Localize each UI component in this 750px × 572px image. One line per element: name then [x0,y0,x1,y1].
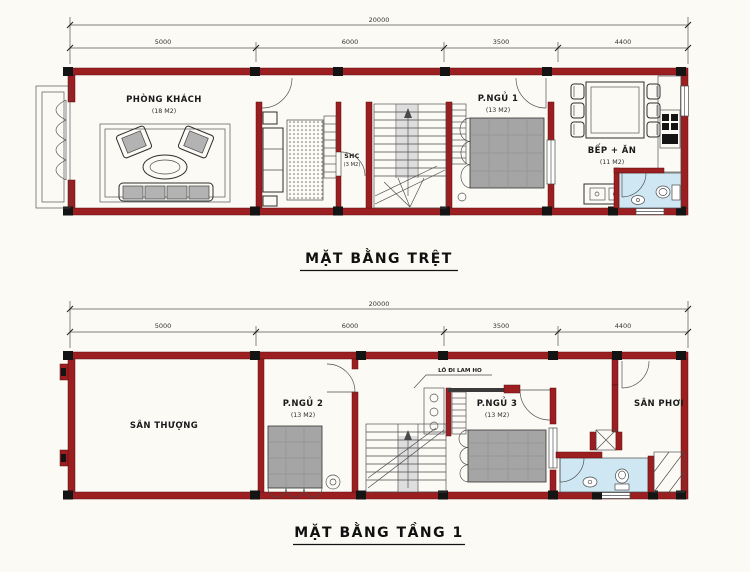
patterned-rug [287,120,323,200]
ground-floor-dimensions: 20000 5000 6000 3500 4400 [67,16,691,64]
room-label-kitchen: BẾP + ĂN [588,143,636,156]
room-label-shc: SHC [344,153,359,160]
bed-1 [460,118,544,188]
washbasin-icon-2 [583,477,597,487]
stair-direction-arrow-2 [404,430,412,440]
ground-floor-plan: 20000 5000 6000 3500 4400 [36,16,691,271]
stove [660,110,680,148]
floorplan-drawing: 20000 5000 6000 3500 4400 [0,0,750,572]
dim-total-2: 20000 [369,300,390,308]
room-label-drying: SÂN PHƠI [634,397,684,409]
dining-chairs [571,84,660,137]
dim-seg4-2: 4400 [615,322,632,330]
ramp-hatch [654,452,684,492]
room-area-kitchen: (11 M2) [600,159,624,166]
shc-room: SHC (3 M2) [341,152,365,176]
terrace-room: SÂN THƯỢNG [130,419,198,431]
bed1-door-arc [516,78,546,108]
dim-seg1-1: 5000 [155,38,172,46]
bedroom-3: P.NGỦ 3 (13 M2) [452,390,550,482]
stairs-ground [374,104,446,208]
bathroom-ground [614,168,681,208]
first-floor-plan: 20000 5000 6000 3500 4400 [60,300,691,545]
bed-2 [268,426,322,497]
room-area-bed3: (13 M2) [485,412,509,419]
sofa-set [100,124,230,202]
room-label-bed1: P.NGỦ 1 [478,91,519,104]
washbasin-icon [632,196,645,205]
wardrobe-bed3 [452,392,466,434]
room-label-bed2: P.NGỦ 2 [283,396,324,409]
room-area-living: (18 M2) [152,108,176,115]
coffee-table [143,155,187,179]
first-floor-dimensions: 20000 5000 6000 3500 4400 [67,300,691,348]
dim-seg3-1: 3500 [493,38,510,46]
drying-yard: SÂN PHƠI [622,361,684,409]
bedroom-2: P.NGỦ 2 (13 M2) [268,364,355,497]
drying-door-arc [622,361,649,388]
family-area [262,78,336,206]
dim-seg2-2: 6000 [342,322,359,330]
plan-title-ground: MẶT BẰNG TRỆT [305,248,453,267]
bed-3 [459,430,546,482]
shelf-cabinet [324,116,336,178]
note-label: LÔ ĐI LAM HO [438,367,482,374]
armchair-left [116,125,153,158]
bedroom-1: P.NGỦ 1 (13 M2) [452,78,546,201]
plan-title-first: MẶT BẰNG TẦNG 1 [294,522,464,541]
room-area-bed1: (13 M2) [486,107,510,114]
dim-total-1: 20000 [369,16,390,24]
bathroom-first [556,430,684,492]
entrance-door [36,86,70,208]
toilet-icon-2 [615,469,629,490]
slat-screen [424,388,444,434]
room-label-living: PHÒNG KHÁCH [126,93,202,105]
room-area-bed2: (13 M2) [291,412,315,419]
bedside-lamp [458,193,466,201]
dining-table [586,82,644,138]
bed3-door-arc [520,390,550,420]
bed2-door-arc [327,364,355,392]
room-area-shc: (3 M2) [344,162,361,168]
living-room: PHÒNG KHÁCH (18 M2) [100,93,230,202]
floorplan-page: 20000 5000 6000 3500 4400 [0,0,750,572]
room-label-terrace: SÂN THƯỢNG [130,419,198,431]
dim-seg1-2: 5000 [155,322,172,330]
side-table [326,475,340,489]
wardrobe-bed1 [452,104,466,164]
dim-seg2-1: 6000 [342,38,359,46]
family-door-arc [262,78,292,108]
armchair-right [178,125,215,158]
family-sofa [263,128,283,192]
dim-seg3-2: 3500 [493,322,510,330]
room-label-bed3: P.NGỦ 3 [477,396,518,409]
dim-seg4-1: 4400 [615,38,632,46]
